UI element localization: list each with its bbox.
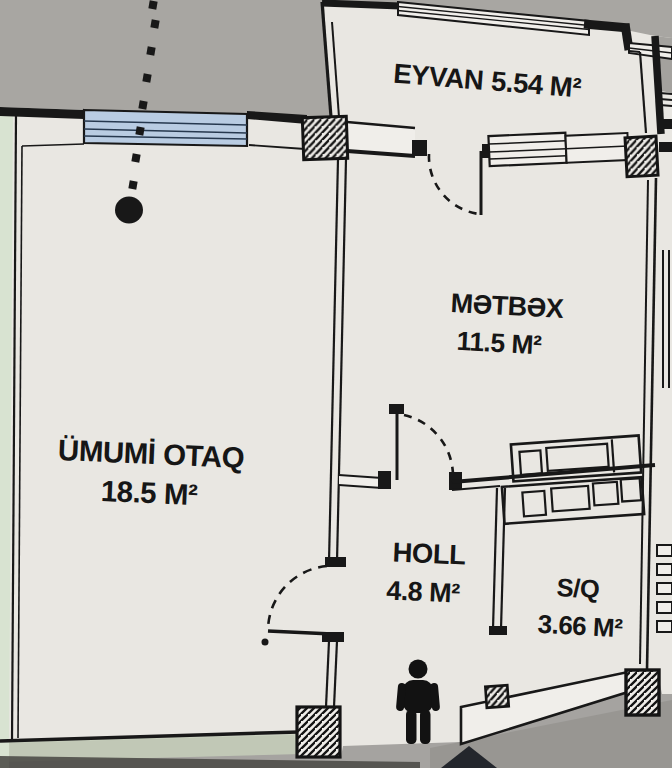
door-leaf-cap — [389, 404, 404, 414]
column-hatched-balcony-left — [302, 116, 347, 160]
axis-dot-square — [150, 19, 159, 28]
adjacent-stair-step — [657, 602, 672, 613]
column-axis-dot — [115, 197, 143, 224]
wall-end-cap — [489, 626, 507, 635]
axis-dot-square — [128, 180, 137, 189]
adjacent-stair-step — [657, 545, 672, 556]
adjacent-window-line — [660, 99, 672, 100]
floor-plan: EYVAN5.54 M² MƏTBƏX 11.5 M² ÜMUMİ OTAQ 1… — [0, 0, 672, 768]
kitchen-balcony-window — [488, 130, 628, 166]
adjacent-window-line — [660, 105, 672, 106]
door-jamb — [325, 557, 346, 567]
label-sq: S/Q — [556, 573, 600, 603]
label-metbex: MƏTBƏX — [450, 288, 565, 324]
axis-dot-square — [146, 46, 155, 55]
person-leg — [420, 710, 431, 744]
axis-dot-square — [148, 0, 157, 9]
column-hatched-small — [485, 685, 508, 707]
balcony-top-left-corner — [322, 3, 400, 6]
adjacent-stair-step — [657, 583, 672, 594]
label-holl: HOLL — [392, 536, 466, 570]
window-living-room — [84, 110, 247, 146]
floor-plan-svg: EYVAN5.54 M² MƏTBƏX 11.5 M² ÜMUMİ OTAQ 1… — [0, 0, 672, 768]
axis-dot-square — [135, 126, 144, 135]
door-jamb — [378, 471, 391, 489]
outside-gray-top-left — [0, 0, 330, 118]
label-umumi-otaq-area: 18.5 M² — [100, 474, 199, 511]
adjacent-stair-step — [657, 564, 672, 575]
adjacent-wall-stub — [659, 119, 672, 129]
door-jamb — [412, 140, 427, 156]
column-hatched-bottom-right — [626, 670, 659, 715]
label-metbex-area: 11.5 M² — [456, 326, 543, 360]
person-torso — [403, 680, 433, 713]
label-holl-area: 4.8 M² — [386, 575, 461, 608]
axis-dot-square — [138, 100, 147, 109]
column-hatched-balcony-right — [625, 136, 658, 177]
person-head — [409, 660, 428, 679]
door-jamb — [322, 632, 344, 642]
adjacent-stair-step — [657, 621, 672, 632]
door-handle-dot — [262, 639, 269, 646]
adjacent-window-line — [660, 93, 672, 94]
balcony-inner-step — [629, 51, 640, 52]
column-hatched-bottom-left — [297, 707, 340, 757]
label-sq-area: 3.66 M² — [537, 609, 624, 643]
adjacent-wall-stub — [659, 142, 672, 152]
axis-dot-square — [142, 73, 151, 82]
person-leg — [406, 710, 417, 744]
axis-dot-square — [131, 153, 140, 162]
